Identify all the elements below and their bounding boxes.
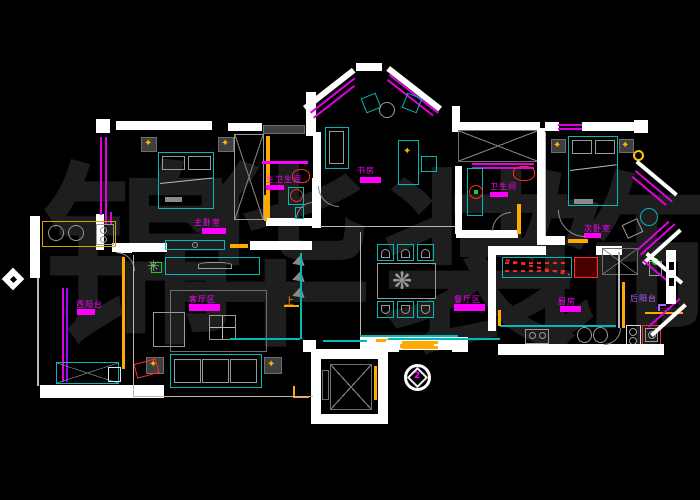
window-cell: [669, 262, 674, 270]
elevator-wall: [311, 349, 321, 424]
wall-segment: [537, 128, 545, 238]
sink-bowl: [629, 328, 637, 336]
lamp-icon: ✦: [267, 360, 275, 370]
plant-pot: [151, 262, 162, 273]
door-frame-mark: [517, 204, 521, 234]
burner: [529, 332, 536, 339]
elevator-wall: [378, 349, 388, 424]
window-line: [558, 124, 582, 126]
lamp-icon: ✦: [144, 139, 152, 149]
wall-line: [618, 252, 620, 328]
door-threshold: [568, 239, 588, 243]
label-bar: [584, 233, 601, 238]
wall-line: [133, 255, 134, 396]
pillow: [572, 140, 592, 154]
dresser-knob: [192, 242, 198, 248]
label-bar: [360, 177, 381, 183]
chair-seat: [401, 305, 410, 314]
wall-segment: [634, 120, 648, 133]
shower-screen: [262, 161, 308, 164]
centerpiece-icon: ❋: [392, 268, 418, 294]
window-line: [313, 85, 355, 119]
elevator-wall: [311, 349, 388, 359]
wall-segment: [620, 344, 664, 355]
door-threshold: [230, 244, 248, 248]
wall-segment: [116, 121, 212, 130]
wall-segment: [488, 253, 496, 331]
room-label: 后阳台: [630, 293, 657, 304]
chair-seat: [421, 305, 430, 314]
burner: [100, 236, 107, 243]
chair-seat: [421, 249, 430, 258]
window-line: [558, 128, 582, 130]
door-frame-mark: [498, 310, 501, 326]
sink-bowl: [68, 225, 84, 241]
bookcase-shelf: [329, 131, 344, 164]
wall-segment: [455, 166, 462, 234]
sofa-cushion: [230, 359, 257, 383]
lamp-icon: ✦: [621, 141, 629, 151]
burner: [100, 227, 107, 234]
wardrobe: [234, 134, 264, 220]
chair-seat: [401, 249, 410, 258]
sink-bowl: [48, 225, 64, 241]
curtain-line: [122, 257, 125, 369]
bay-wall: [356, 63, 382, 71]
pillow: [595, 140, 615, 154]
entry-threshold: [402, 346, 438, 349]
sofa-cushion: [202, 359, 229, 383]
wall-segment: [303, 340, 316, 352]
door-frame-mark: [374, 366, 377, 400]
entry-threshold: [402, 341, 438, 344]
wall-segment: [545, 122, 559, 131]
elevator-wall: [311, 414, 388, 424]
wall-segment: [488, 246, 546, 255]
label-bar: [266, 185, 284, 190]
floor-drain: [108, 367, 121, 382]
room-label: 主卫生间: [266, 175, 302, 184]
room-label: 餐厅区: [454, 295, 481, 304]
table-line: [210, 327, 235, 328]
refrigerator: [574, 257, 598, 278]
room-label: 书房: [357, 166, 375, 175]
wall-line: [360, 232, 361, 335]
storage-closet: [602, 248, 638, 275]
label-bar: [189, 304, 220, 311]
ceiling-symbol: [633, 150, 644, 161]
room-label: 主卧室: [194, 218, 221, 227]
label-bar: [202, 228, 226, 234]
room-label: 厨房: [558, 297, 576, 306]
label-bar: [490, 192, 508, 197]
pillow: [188, 156, 211, 170]
wall-segment: [96, 119, 110, 133]
wall-segment: [666, 250, 676, 304]
room-label: 卫生间: [490, 182, 517, 191]
wash-basin: [290, 189, 303, 202]
wall-line: [133, 396, 313, 397]
wall-line: [320, 226, 455, 227]
sofa-cushion: [174, 359, 201, 383]
floor-plan-canvas[interactable]: 锦 华 装 饰 ✦ ✦ 主卧室 主卫生间: [0, 0, 700, 500]
hall-closet: [458, 130, 538, 162]
elevator-cab: [330, 364, 372, 410]
bed-runner: [574, 199, 593, 204]
lamp-icon: ✦: [403, 147, 411, 157]
label-bar: [77, 309, 95, 315]
window-cell: [669, 278, 674, 286]
round-table: [379, 102, 395, 118]
pillow: [162, 156, 185, 170]
label-bar: [454, 304, 485, 311]
up-underline: [284, 305, 299, 307]
wall-segment: [582, 122, 636, 131]
wall-segment: [498, 344, 620, 355]
wall-segment: [456, 230, 518, 238]
wall-segment: [228, 123, 262, 131]
label-bar: [560, 306, 581, 312]
wall-segment: [537, 236, 565, 245]
desk-chair: [421, 156, 437, 172]
lamp-icon: ✦: [221, 139, 229, 149]
wall-line: [37, 278, 39, 386]
faucet-dot: [474, 190, 478, 194]
wall-segment: [250, 241, 312, 250]
wall-segment: [456, 122, 540, 130]
window-line: [472, 163, 534, 165]
door-frame-mark: [264, 195, 267, 221]
floor-boundary: [230, 338, 300, 340]
room-label: 客厅区: [189, 295, 216, 304]
window-line: [100, 137, 102, 215]
elevator-door-line: [323, 340, 367, 342]
burner: [539, 332, 546, 339]
elevator-counterweight: [322, 370, 329, 400]
wall-line: [545, 132, 546, 236]
floor-boundary: [388, 338, 500, 340]
tv-set: [198, 262, 232, 269]
sink-bowl: [577, 327, 592, 343]
section-marker-number: 2: [414, 371, 420, 381]
toilet: [513, 166, 535, 181]
lamp-icon: ✦: [553, 141, 561, 151]
armchair: [153, 312, 185, 347]
bed-runner: [165, 197, 182, 202]
door-frame-mark: [622, 282, 625, 328]
wall-segment: [386, 340, 399, 352]
tick-mark: [658, 304, 666, 306]
window-line: [105, 137, 107, 215]
room-label: 西阳台: [76, 300, 103, 309]
round-table: [640, 208, 658, 226]
floor-boundary: [300, 253, 302, 339]
chair-seat: [381, 249, 390, 258]
wall-segment: [30, 216, 40, 278]
room-label: 次卧室: [584, 224, 611, 233]
chair-seat: [381, 305, 390, 314]
wall-hatch: [263, 125, 305, 134]
